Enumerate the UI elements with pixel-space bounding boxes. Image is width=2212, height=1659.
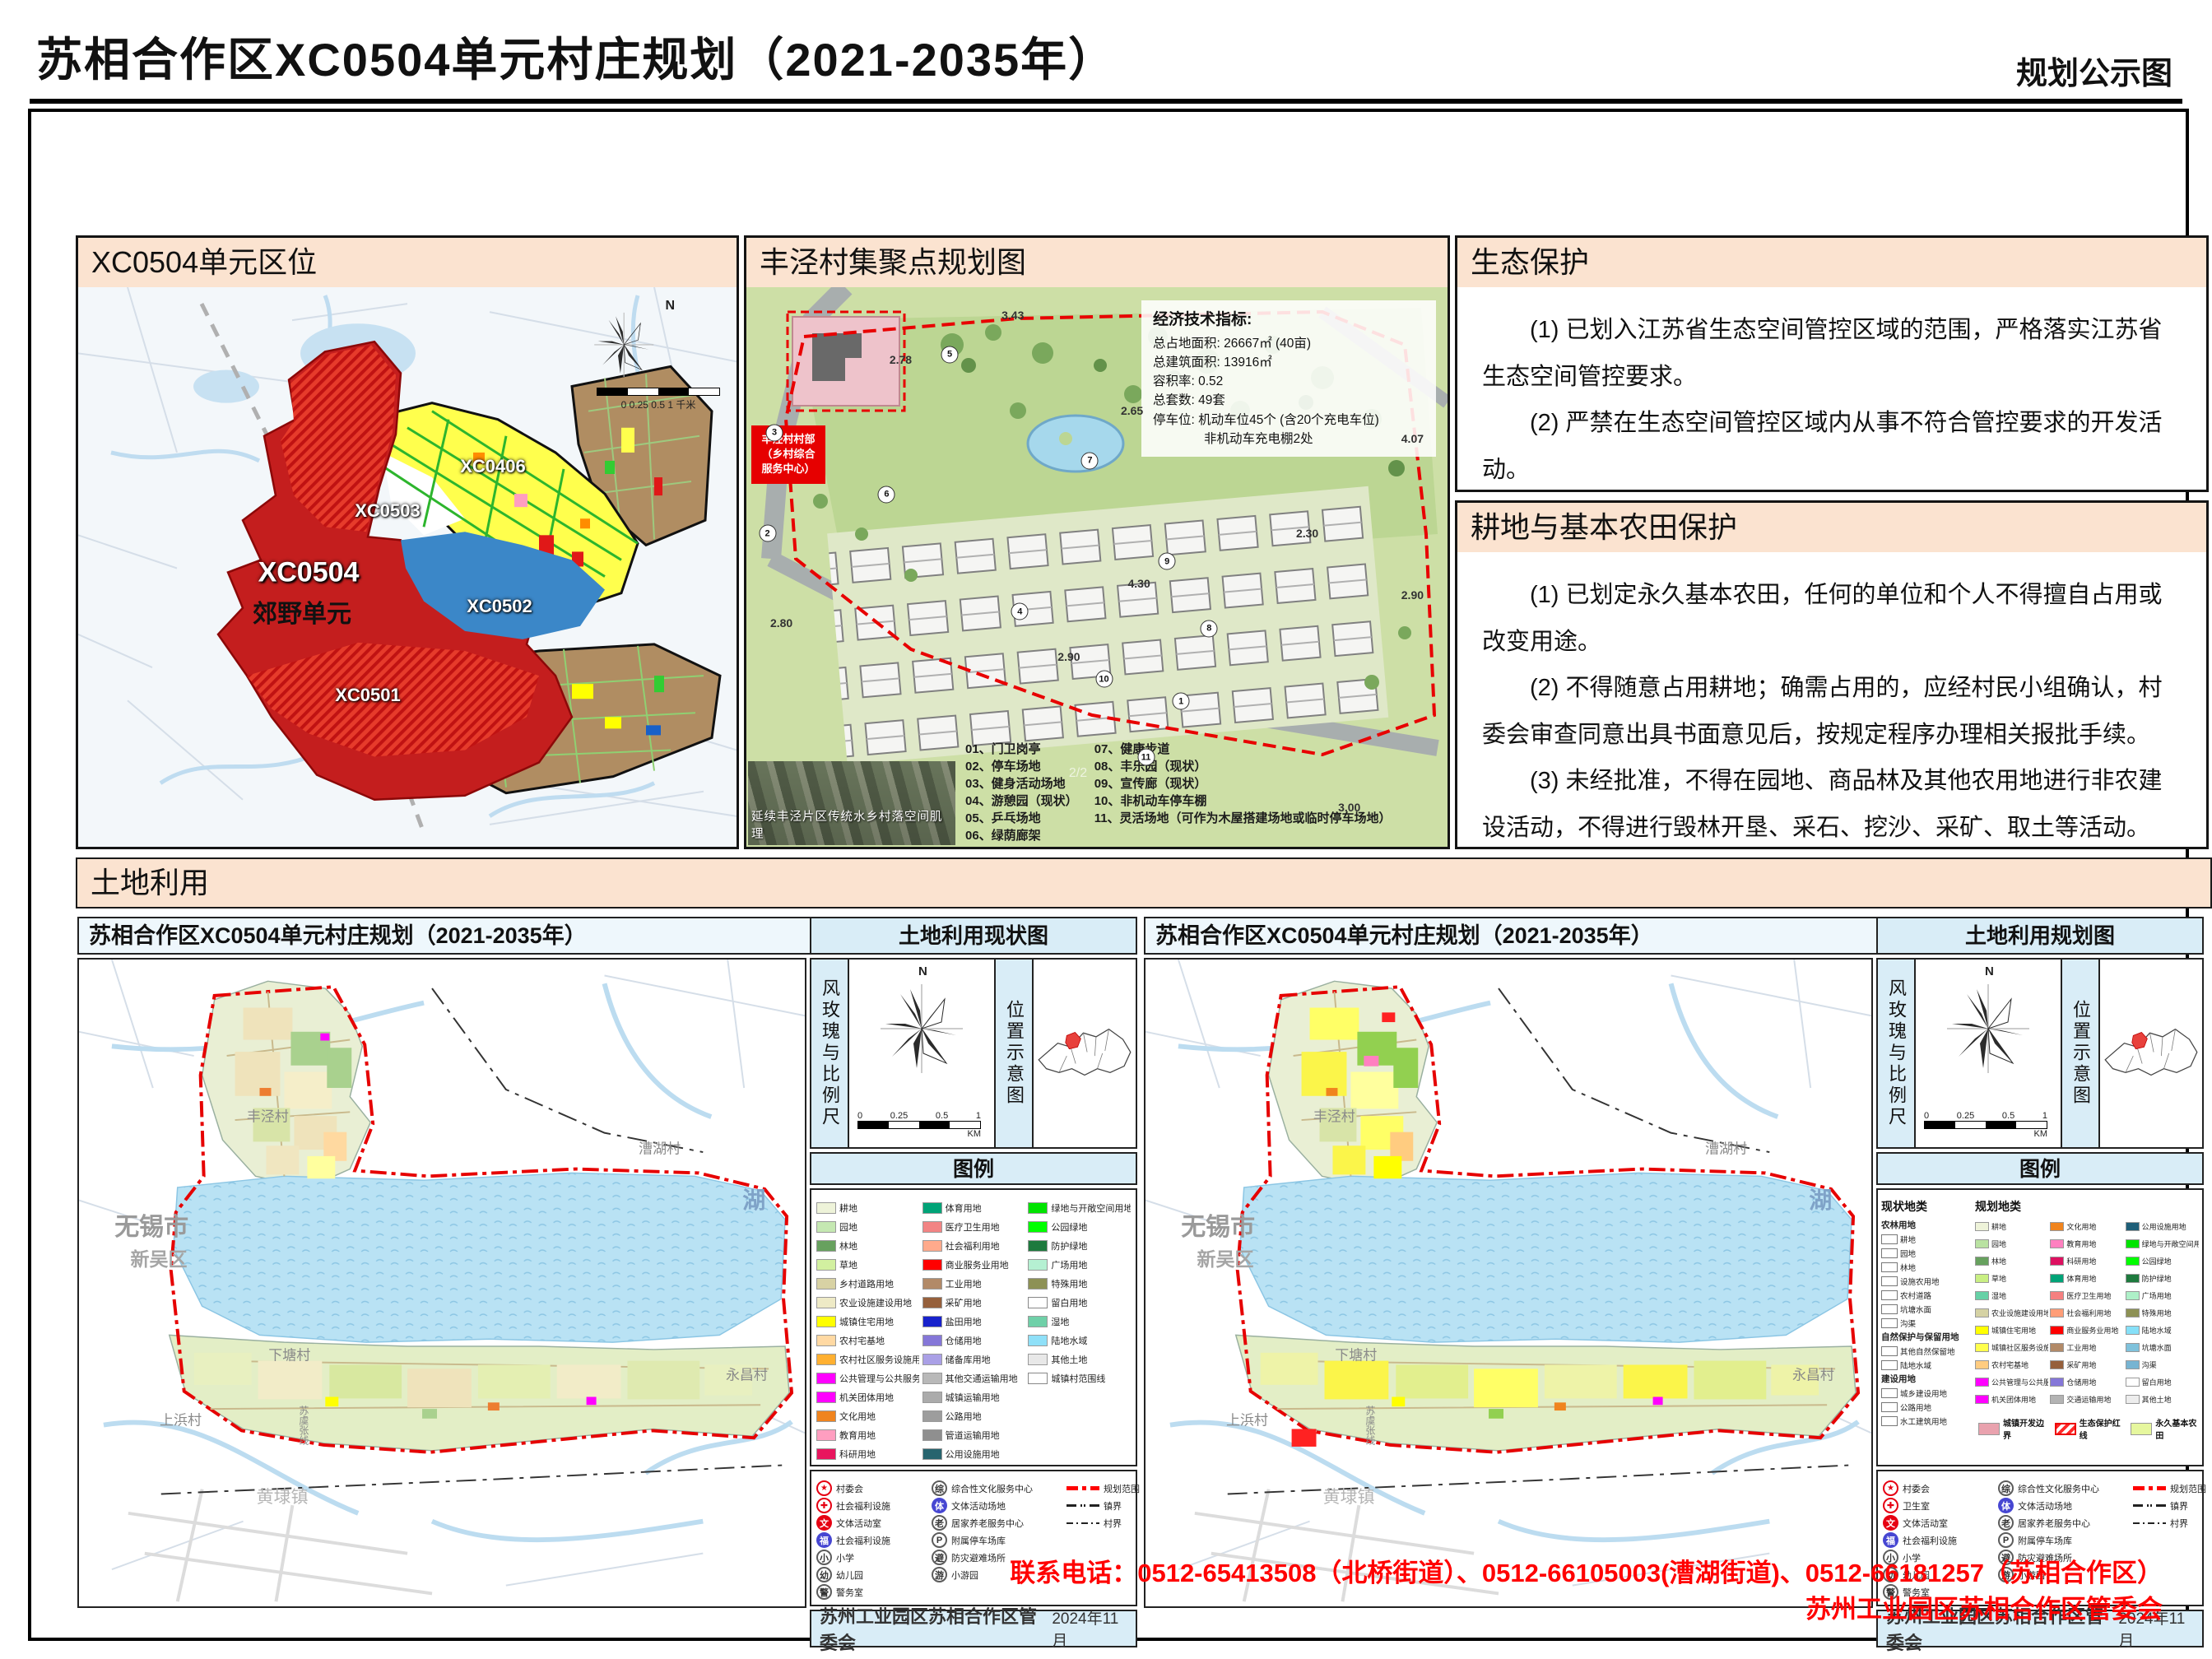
- economic-indicators: 经济技术指标: 总占地面积: 26667㎡ (40亩)总建筑面积: 13916㎡…: [1141, 300, 1436, 457]
- facility-item: 综 综合性文化服务中心: [1998, 1480, 2130, 1497]
- type-label: 水工建筑用地: [1900, 1415, 1947, 1427]
- legend-swatch: [816, 1392, 836, 1403]
- facility-label: 附属停车场库: [2018, 1534, 2072, 1547]
- legend-swatch: [922, 1354, 942, 1365]
- legend-swatch: [816, 1448, 836, 1460]
- scalebar-graphic: [597, 388, 720, 396]
- landuse-current-block: 苏相合作区XC0504单元村庄规划（2021-2035年） 丰泾村漕湖村无锡市新…: [77, 917, 1141, 1649]
- legend-swatch: [2126, 1239, 2140, 1248]
- line-label: 规划范围: [2170, 1482, 2206, 1495]
- corner-label: 规划公示图: [2016, 48, 2172, 93]
- legend-item: 工业用地: [922, 1274, 1025, 1293]
- location-map: XC0503 XC0406 XC0504 郊野单元 XC0502 XC0501 …: [78, 287, 737, 847]
- legend-swatch: [1028, 1278, 1048, 1290]
- legend-label: 工业用地: [946, 1277, 982, 1290]
- legend-item: 耕地: [816, 1198, 919, 1217]
- facility-label: 村委会: [1903, 1482, 1930, 1495]
- line-legend-item: 村界: [2133, 1514, 2206, 1531]
- cluster-legend: 01、门卫岗亭02、停车场地03、健身活动场地04、游憩园（现状）05、乒乓场地…: [965, 740, 1392, 843]
- current-map-canvas: [79, 960, 805, 1606]
- photo-caption: 延续丰泾片区传统水乡村落空间肌理: [751, 807, 952, 842]
- planned-colA: 耕地 园地 林地 草地: [1975, 1218, 2048, 1408]
- plan-number: 9: [1159, 553, 1176, 570]
- map-label: 下塘村: [268, 1344, 310, 1364]
- current-type-row: 设施农用地: [1881, 1274, 1972, 1288]
- legend-label: 机关团体用地: [839, 1391, 894, 1404]
- type-swatch: [1881, 1318, 1898, 1328]
- facility-label: 小学: [836, 1551, 854, 1564]
- type-swatch: [1881, 1388, 1898, 1398]
- facility-item: 警 警务室: [816, 1583, 928, 1601]
- legend-item: 公用设施用地: [922, 1444, 1025, 1463]
- panel-location: XC0504单元区位: [76, 235, 739, 849]
- legend-label: 公共管理与公共服务用地: [1991, 1377, 2048, 1387]
- map-label: 丰泾村: [1313, 1104, 1355, 1125]
- facility-item: 综 综合性文化服务中心: [932, 1480, 1063, 1497]
- facility-icon: 体: [932, 1498, 947, 1513]
- farmland-paragraphs: (1) 已划定永久基本农田，任何的单位和个人不得擅自占用或改变用途。(2) 不得…: [1457, 552, 2206, 847]
- type-swatch: [1881, 1234, 1898, 1244]
- legend-label: 草地: [839, 1258, 857, 1271]
- north-label: N: [665, 299, 675, 314]
- facility-item: ✚ 社会福利设施: [816, 1497, 928, 1514]
- dimension-label: 4.07: [1401, 432, 1424, 445]
- facility-item: ★ 村委会: [816, 1480, 928, 1497]
- type-label: 公路用地: [1900, 1401, 1931, 1413]
- legend-swatch: [922, 1297, 942, 1308]
- legend-swatch: [922, 1221, 942, 1233]
- legend-item: 湿地: [1975, 1287, 2048, 1304]
- farmland-paragraph: (1) 已划定永久基本农田，任何的单位和个人不得擅自占用或改变用途。: [1482, 572, 2182, 665]
- zone-label: XC0501: [335, 685, 401, 706]
- plan-number: 3: [766, 424, 783, 441]
- planned-side-title: 土地利用规划图: [1876, 917, 2204, 955]
- current-types-heading: 现状地类: [1881, 1198, 1972, 1215]
- legend-item: 管道运输用地: [922, 1425, 1025, 1444]
- facility-label: 文体活动室: [1903, 1517, 1948, 1530]
- plan-number: 1: [1173, 693, 1190, 710]
- scale-tick: 0.25: [1957, 1111, 1974, 1121]
- type-swatch: [1881, 1276, 1898, 1286]
- overlay-item: 城镇开发边界: [1978, 1416, 2047, 1441]
- legend-item: 社会福利用地: [2050, 1304, 2123, 1322]
- legend-label: 广场用地: [1051, 1258, 1087, 1271]
- legend-label: 园地: [839, 1220, 857, 1234]
- map-label: 湖: [742, 1183, 765, 1215]
- cluster-legend-item: 02、停车场地: [965, 757, 1078, 774]
- legend-label: 文化用地: [2066, 1221, 2096, 1232]
- legend-label: 绿地与开敞空间用地: [1051, 1201, 1131, 1215]
- legend-swatch: [2126, 1274, 2140, 1283]
- legend-item: 特殊用地: [2126, 1304, 2199, 1322]
- plan-number: 7: [1081, 452, 1099, 469]
- legend-swatch: [1028, 1240, 1048, 1252]
- farmland-paragraph: (2) 不得随意占用耕地；确需占用的，应经村民小组确认，村委会审查同意出具书面意…: [1482, 665, 2182, 758]
- map-label: 无锡市: [114, 1206, 188, 1243]
- legend-item: 乡村道路用地: [816, 1274, 919, 1293]
- legend-item: 农村宅基地: [816, 1331, 919, 1350]
- planned-types-column: 规划地类 耕地 园地 林地: [1975, 1197, 2199, 1441]
- legend-swatch: [922, 1410, 942, 1422]
- legend-label: 公用设施用地: [946, 1448, 1000, 1461]
- facility-icon: ★: [816, 1480, 832, 1496]
- facility-item: 文 文体活动室: [1883, 1514, 1995, 1531]
- scalebar-graphic: [1924, 1121, 2047, 1129]
- legend-item: 采矿用地: [922, 1293, 1025, 1312]
- legend-swatch: [816, 1240, 836, 1252]
- overlay-label: 永久基本农田: [2155, 1416, 2199, 1441]
- line-swatch: [2133, 1522, 2166, 1524]
- legend-item: 草地: [816, 1255, 919, 1274]
- position-sketch-icon: [1034, 1014, 1136, 1090]
- legend-swatch: [1028, 1316, 1048, 1327]
- position-sketch: [1034, 960, 1136, 1147]
- legend-swatch: [2050, 1291, 2064, 1300]
- legend-label: 公园绿地: [1051, 1220, 1087, 1234]
- legend-label: 园地: [1991, 1238, 2006, 1249]
- legend-item: 储备库用地: [922, 1350, 1025, 1369]
- legend-swatch: [1975, 1360, 1989, 1369]
- legend-item: 公路用地: [922, 1406, 1025, 1425]
- legend-item: 农村社区服务设施用地: [816, 1350, 919, 1369]
- line-swatch: [1066, 1522, 1099, 1524]
- scale-tick: 1: [2042, 1111, 2047, 1121]
- indicator-line: 总套数: 49套: [1153, 391, 1424, 410]
- legend-item: 耕地: [1975, 1218, 2048, 1235]
- windrose-box: N 0 0.25 0.5 1 KM: [849, 960, 996, 1147]
- current-type-row: 园地: [1881, 1246, 1972, 1260]
- legend-swatch: [922, 1240, 942, 1252]
- plan-number: 8: [1201, 620, 1218, 637]
- legend-item: 仓储用地: [922, 1331, 1025, 1350]
- current-type-row: 耕地: [1881, 1232, 1972, 1246]
- legend-item: 商业服务业用地: [2050, 1322, 2123, 1339]
- facility-icon: ★: [1883, 1480, 1898, 1496]
- scale-unit: 千米: [676, 399, 695, 411]
- type-label: 自然保护与保留用地: [1881, 1331, 1959, 1343]
- legend-item: 盐田用地: [922, 1312, 1025, 1331]
- legend-label: 管道运输用地: [946, 1429, 1000, 1442]
- legend-item: 防护绿地: [1028, 1236, 1131, 1255]
- legend-item: 采矿用地: [2050, 1356, 2123, 1373]
- current-types-list: 农林用地 耕地 园地 林地 设施农用地: [1881, 1218, 1972, 1428]
- facility-label: 警务室: [836, 1586, 863, 1599]
- facility-label: 综合性文化服务中心: [951, 1482, 1033, 1495]
- facility-icon: ✚: [1883, 1498, 1898, 1513]
- legend-label: 体育用地: [946, 1201, 982, 1215]
- type-swatch: [1881, 1402, 1898, 1412]
- current-type-row: 城乡建设用地: [1881, 1386, 1972, 1400]
- legend-label: 防护绿地: [2142, 1273, 2172, 1284]
- overlay-swatch: [1978, 1423, 2000, 1435]
- legend-item: 城镇社区服务设施用地: [1975, 1339, 2048, 1356]
- line-legend-item: 镇界: [1066, 1497, 1140, 1514]
- legend-item: 公园绿地: [2126, 1252, 2199, 1270]
- indicator-line: 容积率: 0.52: [1153, 372, 1424, 391]
- legend-swatch: [816, 1335, 836, 1346]
- cluster-legend-item: 09、宣传廊（现状）: [1094, 774, 1392, 792]
- current-map-title: 苏相合作区XC0504单元村庄规划（2021-2035年）: [77, 917, 816, 955]
- legend-swatch: [1975, 1291, 1989, 1300]
- scale-tick: 0: [857, 1111, 862, 1121]
- line-label: 镇界: [2170, 1499, 2188, 1513]
- planned-colC: 公用设施用地 绿地与开敞空间用地 公园绿地 防护绿地: [2126, 1218, 2199, 1408]
- legend-label: 采矿用地: [2066, 1359, 2096, 1370]
- map-label: 黄埭镇: [256, 1484, 308, 1508]
- position-label: 位置示意图: [2062, 960, 2100, 1147]
- line-label: 村界: [1104, 1517, 1122, 1530]
- legend-item: 广场用地: [1028, 1255, 1131, 1274]
- legend-swatch: [1028, 1259, 1048, 1271]
- legend-swatch: [1975, 1257, 1989, 1266]
- legend-item: 留白用地: [2126, 1373, 2199, 1391]
- legend-item: 商业服务业用地: [922, 1255, 1025, 1274]
- facility-item: 幼 幼儿园: [816, 1566, 928, 1583]
- facility-label: 居家养老服务中心: [2018, 1517, 2090, 1530]
- scale-tick: 1: [976, 1111, 981, 1121]
- legend-swatch: [922, 1202, 942, 1214]
- type-label: 其他自然保留地: [1900, 1345, 1955, 1357]
- type-label: 耕地: [1900, 1234, 1916, 1245]
- legend-item: 教育用地: [2050, 1235, 2123, 1252]
- contact-org: 苏州工业园区苏相合作区管委会: [1805, 1588, 2163, 1625]
- page-title: 苏相合作区XC0504单元村庄规划（2021-2035年）: [36, 23, 1116, 90]
- zone-label: XC0502: [467, 596, 532, 617]
- farmland-paragraph: (3) 未经批准，不得在园地、商品林及其他农用地进行非农建设活动，不得进行毁林开…: [1482, 758, 2182, 847]
- facility-item: 福 社会福利设施: [1883, 1531, 1995, 1549]
- legend-swatch: [2050, 1222, 2064, 1231]
- current-map: 丰泾村漕湖村无锡市新吴区湖下塘村上浜村永昌村黄埭镇苏虞张线: [77, 958, 806, 1608]
- facility-icon: 警: [816, 1584, 832, 1600]
- legend-item: 体育用地: [922, 1198, 1025, 1217]
- legend-label: 机关团体用地: [1991, 1394, 2036, 1405]
- plan-number: 5: [941, 346, 959, 363]
- legend-item: 绿地与开敞空间用地: [2126, 1235, 2199, 1252]
- facility-icon: P: [1998, 1532, 2014, 1548]
- legend-swatch: [1028, 1373, 1048, 1384]
- dimension-label: 2.80: [770, 616, 792, 630]
- dimension-label: 2.90: [1401, 588, 1424, 602]
- map-label: 上浜村: [1226, 1409, 1268, 1429]
- facility-icon: 体: [1998, 1498, 2014, 1513]
- legend-swatch: [2050, 1395, 2064, 1404]
- legend-swatch: [816, 1316, 836, 1327]
- legend-item: 医疗卫生用地: [922, 1217, 1025, 1236]
- header-rule: [30, 99, 2182, 104]
- legend-label: 陆地水域: [2142, 1325, 2172, 1336]
- legend-swatch: [1975, 1222, 1989, 1231]
- legend-item: 文化用地: [2050, 1218, 2123, 1235]
- type-label: 建设用地: [1881, 1373, 1916, 1385]
- legend-label: 文化用地: [839, 1410, 876, 1423]
- legend-item: 特殊用地: [1028, 1274, 1131, 1293]
- map-label: 新吴区: [1197, 1243, 1254, 1271]
- legend-swatch: [2050, 1274, 2064, 1283]
- legend-label: 科研用地: [2066, 1256, 2096, 1266]
- legend-item: 林地: [816, 1236, 919, 1255]
- panel-cluster: 丰泾村集聚点规划图: [744, 235, 1450, 849]
- planned-map-title: 苏相合作区XC0504单元村庄规划（2021-2035年）: [1144, 917, 1883, 955]
- current-legend-title: 图例: [810, 1152, 1137, 1185]
- legend-item: 林地: [1975, 1252, 2048, 1270]
- legend-item: 公共管理与公共服务用地: [816, 1369, 919, 1387]
- legend-label: 交通运输用地: [2066, 1394, 2111, 1405]
- legend-swatch: [1028, 1297, 1048, 1308]
- legend-label: 仓储用地: [2066, 1377, 2096, 1387]
- cluster-legend-item: 06、绿荫廊架: [965, 826, 1078, 843]
- legend-label: 其他土地: [2142, 1394, 2172, 1405]
- legend-swatch: [816, 1278, 836, 1290]
- landuse-section-title: 土地利用: [76, 857, 2212, 908]
- legend-label: 特殊用地: [1051, 1277, 1087, 1290]
- facility-icon: P: [932, 1532, 947, 1548]
- line-swatch: [1066, 1486, 1099, 1490]
- facility-label: 综合性文化服务中心: [2018, 1482, 2099, 1495]
- zone-label: 郊野单元: [253, 593, 351, 630]
- facility-icon: 福: [1883, 1532, 1898, 1548]
- legend-swatch: [2126, 1291, 2140, 1300]
- legend-label: 公路用地: [946, 1410, 982, 1423]
- legend-item: 园地: [816, 1217, 919, 1236]
- legend-label: 其他交通运输用地: [946, 1372, 1018, 1385]
- current-legend: 耕地 园地 林地 草地 乡村道路用地 农: [810, 1188, 1137, 1466]
- dimension-label: 3.00: [1338, 801, 1360, 814]
- planned-map-canvas: [1145, 960, 1871, 1606]
- legend-item: 城镇运输用地: [922, 1387, 1025, 1406]
- facility-item: P 附属停车场库: [1998, 1531, 2130, 1549]
- legend-label: 草地: [1991, 1273, 2006, 1284]
- legend-label: 乡村道路用地: [839, 1277, 894, 1290]
- legend-swatch: [2126, 1360, 2140, 1369]
- legend-item: 教育用地: [816, 1425, 919, 1444]
- legend-label: 城镇住宅用地: [1991, 1325, 2036, 1336]
- legend-swatch: [2126, 1395, 2140, 1404]
- scale-unit: KM: [857, 1129, 981, 1139]
- facility-icon: 文: [816, 1515, 832, 1531]
- north-label: N: [1985, 964, 1994, 978]
- line-legend-item: 规划范围: [1066, 1480, 1140, 1497]
- legend-item: 农业设施建设用地: [1975, 1304, 2048, 1322]
- legend-item: 公园绿地: [1028, 1217, 1131, 1236]
- legend-label: 商业服务业用地: [2066, 1325, 2118, 1336]
- legend-swatch: [816, 1410, 836, 1422]
- legend-item: 体育用地: [2050, 1270, 2123, 1287]
- legend-col3: 绿地与开敞空间用地 公园绿地 防护绿地 广场用地 特殊用地: [1028, 1198, 1131, 1463]
- indicator-line: 非机动车充电棚2处: [1153, 430, 1424, 448]
- facility-label: 附属停车场库: [951, 1534, 1006, 1547]
- map-label: 漕湖村: [1705, 1136, 1747, 1157]
- legend-swatch: [2050, 1326, 2064, 1335]
- map-label: 丰泾村: [247, 1104, 289, 1125]
- current-type-row: 建设用地: [1881, 1372, 1972, 1386]
- current-type-row: 自然保护与保留用地: [1881, 1330, 1972, 1344]
- scale-unit: KM: [1924, 1129, 2047, 1139]
- map-scalebar: 0 0.25 0.5 1 KM: [1924, 1111, 2047, 1139]
- type-label: 设施农用地: [1900, 1276, 1940, 1287]
- indicator-line: 总建筑面积: 13916㎡: [1153, 353, 1424, 372]
- facility-icon: 避: [932, 1550, 947, 1565]
- legend-col1: 耕地 园地 林地 草地 乡村道路用地 农: [816, 1198, 919, 1463]
- aerial-photo: 延续丰泾片区传统水乡村落空间肌理: [748, 761, 955, 845]
- legend-swatch: [2126, 1222, 2140, 1231]
- legend-label: 城镇运输用地: [946, 1391, 1000, 1404]
- site-label-line: 服务中心）: [755, 462, 822, 476]
- legend-item: 医疗卫生用地: [2050, 1287, 2123, 1304]
- legend-swatch: [1028, 1354, 1048, 1365]
- panel-farmland-title: 耕地与基本农田保护: [1457, 503, 2206, 552]
- site-label: 丰泾村村部（乡村综合服务中心）: [751, 425, 825, 484]
- legend-label: 盐田用地: [946, 1315, 982, 1328]
- facility-item: 老 居家养老服务中心: [932, 1514, 1063, 1531]
- current-map-footer: 苏州工业园区苏相合作区管委会 2024年11月: [810, 1610, 1137, 1647]
- legend-label: 工业用地: [2066, 1342, 2096, 1353]
- legend-item: 仓储用地: [2050, 1373, 2123, 1391]
- line-label: 村界: [2170, 1517, 2188, 1530]
- cluster-legend-item: 01、门卫岗亭: [965, 740, 1078, 757]
- legend-swatch: [922, 1316, 942, 1327]
- facility-item: ✚ 卫生室: [1883, 1497, 1995, 1514]
- line-label: 镇界: [1104, 1499, 1122, 1513]
- map-scalebar: 0 0.25 0.5 1 KM: [857, 1111, 981, 1139]
- facility-item: 老 居家养老服务中心: [1998, 1514, 2130, 1531]
- legend-swatch: [1975, 1239, 1989, 1248]
- cluster-legend-col1: 01、门卫岗亭02、停车场地03、健身活动场地04、游憩园（现状）05、乒乓场地…: [965, 740, 1078, 843]
- overlay-item: 永久基本农田: [2131, 1416, 2199, 1441]
- legend-item: 草地: [1975, 1270, 2048, 1287]
- scale-ticks: 0 0.25 0.5: [621, 399, 665, 411]
- legend-label: 防护绿地: [1051, 1239, 1087, 1252]
- map-label: 黄埭镇: [1322, 1484, 1374, 1508]
- legend-swatch: [816, 1221, 836, 1233]
- legend-swatch: [2050, 1257, 2064, 1266]
- legend-swatch: [922, 1278, 942, 1290]
- legend-label: 农业设施建设用地: [839, 1296, 912, 1309]
- legend-label: 其他土地: [1051, 1353, 1087, 1366]
- plan-number: 4: [1011, 603, 1029, 620]
- dimension-label: 2.30: [1296, 527, 1318, 540]
- overlay-item: 生态保护红线: [2055, 1416, 2123, 1441]
- planned-map: 丰泾村漕湖村无锡市新吴区湖下塘村上浜村永昌村黄埭镇苏虞张线: [1144, 958, 1873, 1608]
- current-type-row: 陆地水域: [1881, 1358, 1972, 1372]
- legend-swatch: [922, 1335, 942, 1346]
- legend-label: 农村宅基地: [839, 1334, 885, 1347]
- scale-tick: 0.5: [936, 1111, 948, 1121]
- legend-label: 公园绿地: [2142, 1256, 2172, 1266]
- legend-label: 湿地: [1051, 1315, 1069, 1328]
- legend-swatch: [2126, 1257, 2140, 1266]
- legend-label: 农村社区服务设施用地: [839, 1353, 919, 1366]
- indicators-lines: 总占地面积: 26667㎡ (40亩)总建筑面积: 13916㎡容积率: 0.5…: [1153, 334, 1424, 449]
- type-label: 城乡建设用地: [1900, 1387, 1947, 1399]
- line-legend-item: 村界: [1066, 1514, 1140, 1531]
- legend-item: 陆地水域: [2126, 1322, 2199, 1339]
- type-swatch: [1881, 1262, 1898, 1272]
- zone-label: XC0504: [258, 556, 360, 588]
- legend-item: 其他土地: [1028, 1350, 1131, 1369]
- legend-swatch: [816, 1429, 836, 1441]
- planned-legend-title: 图例: [1876, 1152, 2204, 1185]
- footer-date: 2024年11月: [1052, 1606, 1127, 1651]
- legend-label: 仓储用地: [946, 1334, 982, 1347]
- map-label: 永昌村: [726, 1364, 768, 1384]
- facility-icon: 小: [816, 1550, 832, 1565]
- legend-item: 园地: [1975, 1235, 2048, 1252]
- legend-swatch: [1028, 1202, 1048, 1214]
- map-label: 永昌村: [1792, 1364, 1834, 1384]
- facility-label: 文体活动场地: [2018, 1499, 2072, 1513]
- facility-icon: ✚: [816, 1498, 832, 1513]
- type-swatch: [1881, 1416, 1898, 1426]
